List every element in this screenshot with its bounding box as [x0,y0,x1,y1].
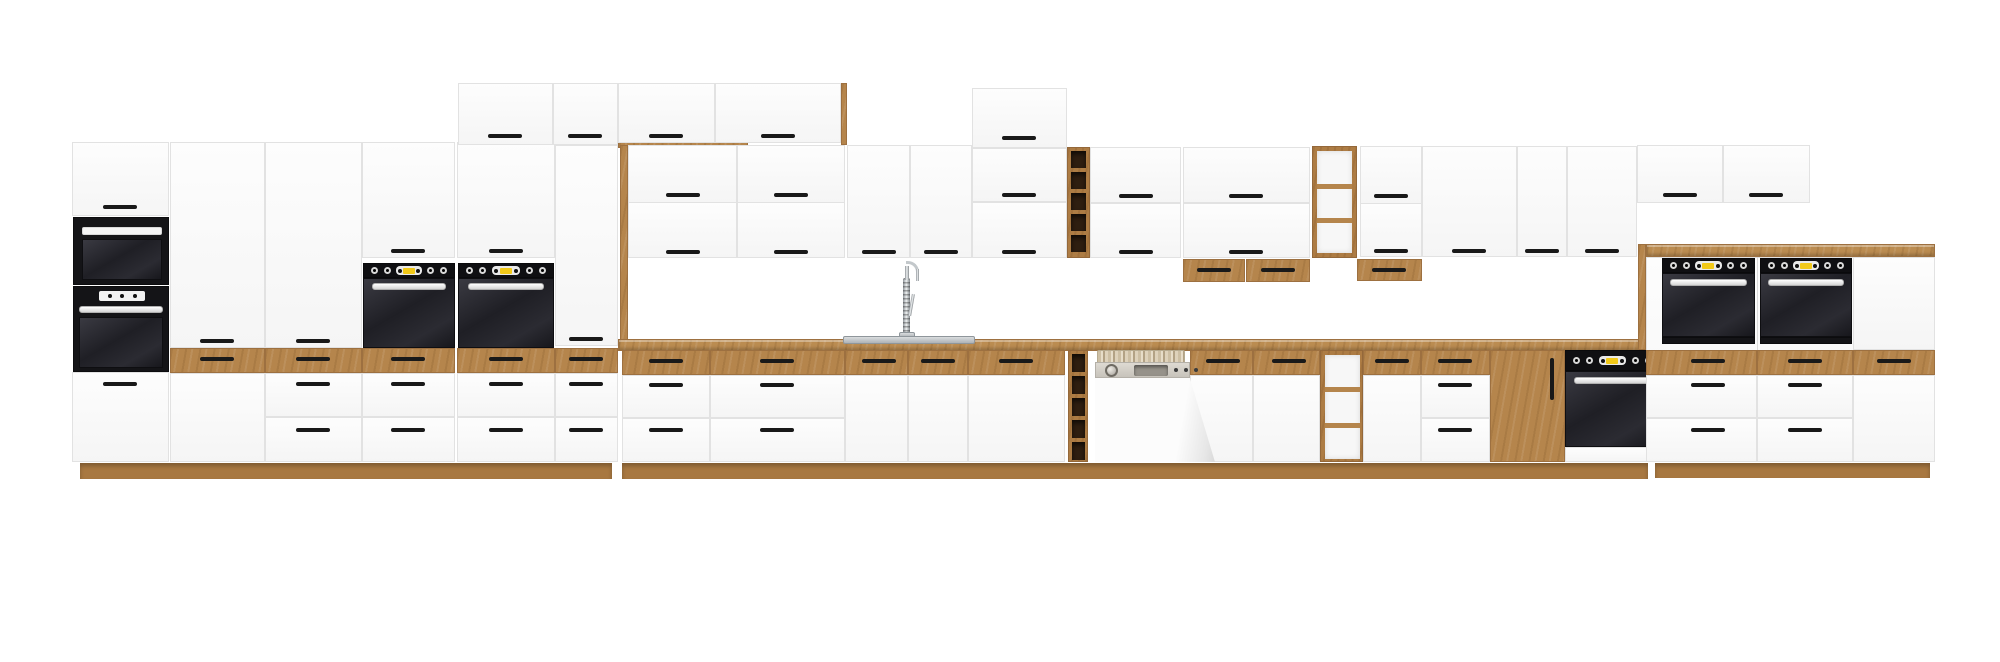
oven-display [1695,261,1721,270]
dishwasher-button [1194,368,1198,372]
oven-knob [1670,262,1677,269]
oven-knob [1683,262,1690,269]
door-handle [488,134,522,138]
oven-bottom-trim [1662,337,1755,344]
dishwasher-control-panel [1095,362,1190,378]
plinth-left [80,463,612,479]
door-handle [774,193,808,197]
base-drawer-front [1646,418,1757,462]
display-dot [1601,359,1605,363]
display-dot [416,269,420,273]
door-handle [1197,268,1231,272]
wine-rack-niche [1072,420,1085,438]
oven-knob [1586,357,1593,364]
door-handle [924,250,958,254]
microwave-glass [82,239,162,280]
wall-cabinet-door [1422,146,1517,257]
wine-rack-niche [1071,151,1086,168]
oven-control-panel [1662,258,1755,273]
oven-handle-bar [1670,279,1747,286]
display-yellow [403,268,415,274]
tall-cabinet-door [170,142,265,348]
base-drawer-front [1421,375,1490,418]
shelf-back-panel [1325,355,1360,459]
display-dot [108,294,112,298]
door-handle [921,359,955,363]
oven-control-panel [1760,258,1852,273]
oven-handle-bar [372,283,446,290]
door-handle [1691,428,1725,432]
door-handle [649,383,683,387]
oven-glass-door [79,317,163,368]
wine-rack-niche [1072,354,1085,372]
wine-rack-niche [1072,442,1085,460]
microwave-handle-bar [82,227,162,235]
door-handle [1663,193,1697,197]
base-door [968,375,1065,462]
display-dot [514,269,518,273]
display-yellow [1606,358,1618,364]
door-handle [1119,250,1153,254]
oak-shelf [1317,218,1352,223]
door-handle [761,134,795,138]
display-dot [133,294,137,298]
base-door [170,373,265,462]
oven-knob [1837,262,1844,269]
door-handle [649,359,683,363]
dishwasher-button [1184,368,1188,372]
oven-knob [479,267,486,274]
base-drawer-front [1757,375,1853,418]
base-drawer-front [555,373,618,417]
oak-side-panel [1638,244,1646,350]
oven-bottom-trim [1760,337,1852,344]
door-handle [391,382,425,386]
door-handle [1691,383,1725,387]
dishwasher-handle-recess [1134,365,1168,376]
display-dot [120,294,124,298]
door-handle [569,428,603,432]
door-handle [1374,194,1408,198]
base-drawer-front [1646,375,1757,418]
oven-glass-door [1760,273,1852,337]
door-handle [862,250,896,254]
oven-control-panel [458,263,554,278]
shelf-back-panel [1317,151,1352,253]
oven-knob [1768,262,1775,269]
door-handle [649,428,683,432]
wall-cabinet-door [910,145,972,258]
oven-knob [1740,262,1747,269]
oven-knob [1573,357,1580,364]
dishwasher-dial [1105,364,1118,377]
sink-rim [843,336,975,344]
oven-display [1793,261,1819,270]
base-drawer-front [362,417,455,462]
base-drawer-front [457,417,555,462]
oven-knob [440,267,447,274]
oven-knob [526,267,533,274]
oven-knob [1632,357,1639,364]
base-drawer-front [622,375,710,418]
oven-display [492,266,519,275]
door-handle [760,383,794,387]
wine-rack-niche [1071,214,1086,231]
display-dot [1620,359,1624,363]
door-handle [1372,268,1406,272]
oven-handle-bar [79,306,163,313]
base-drawer-front [362,373,455,417]
oak-shelf [1325,387,1360,392]
door-handle [200,339,234,343]
base-drawer-front [265,373,362,417]
wine-rack-niche [1071,235,1086,252]
oak-shelf [1317,184,1352,189]
oven-knob [1824,262,1831,269]
base-drawer-front [457,373,555,417]
oak-tower-top [1646,244,1935,257]
display-dot [494,269,498,273]
door-handle [999,359,1033,363]
display-yellow [1800,263,1812,269]
oven-handle-bar [1574,377,1651,384]
oak-side-support-panel [620,145,628,341]
door-handle [1261,268,1295,272]
door-handle [296,339,330,343]
base-drawer-front [710,375,845,418]
door-handle [1374,249,1408,253]
door-handle [296,382,330,386]
display-yellow [1702,263,1714,269]
door-handle [1206,359,1240,363]
dishwasher-cutlery-row [1097,350,1185,362]
base-drawer-front [1757,418,1853,462]
faucet-spout-tip [916,269,919,281]
base-open-shelf-unit [1320,350,1363,462]
door-handle [1691,359,1725,363]
oven-knob [427,267,434,274]
door-handle [1438,383,1472,387]
wine-rack-niche [1071,193,1086,210]
wall-wine-rack [1067,147,1090,258]
oven-control-panel [363,263,455,278]
door-handle [391,428,425,432]
door-handle [568,134,602,138]
tall-cabinet-door [265,142,362,348]
display-dot [1813,264,1817,268]
base-drawer-front [622,418,710,462]
door-handle [200,357,234,361]
base-drawer-front [265,417,362,462]
plinth-right [1655,463,1930,478]
sink-base-door [845,375,908,462]
base-door [1253,375,1320,462]
wall-open-shelf-unit [1312,146,1357,258]
door-handle [391,249,425,253]
door-handle [1375,359,1409,363]
display-dot [1697,264,1701,268]
tall-cabinet-door [362,142,455,258]
door-handle [649,134,683,138]
door-handle [569,357,603,361]
door-handle [489,382,523,386]
display-dot [1795,264,1799,268]
door-handle [569,337,603,341]
wall-cabinet-door [847,145,910,258]
door-handle [1438,428,1472,432]
door-handle [1525,249,1559,253]
oven-handle-bar [1768,279,1844,286]
oven-display [1599,356,1626,365]
oven-knob [539,267,546,274]
door-handle [1788,383,1822,387]
oven-handle-bar [468,283,544,290]
built-in-oven-left-column [73,286,169,372]
door-handle [1585,249,1619,253]
door-handle [489,357,523,361]
tall-cabinet-door [457,142,555,258]
wine-rack-niche [1071,172,1086,189]
oven-display [99,291,145,301]
door-handle [1438,359,1472,363]
door-handle [489,428,523,432]
oven-knob [371,267,378,274]
door-handle [489,249,523,253]
door-handle [103,205,137,209]
wall-cabinet-door [1567,146,1637,257]
door-handle [666,193,700,197]
door-handle [862,359,896,363]
door-handle [760,359,794,363]
oven-knob [1727,262,1734,269]
sink-base-door [908,375,968,462]
plinth-middle [622,463,1648,479]
door-handle [1002,193,1036,197]
door-handle [1788,359,1822,363]
door-handle [666,250,700,254]
door-handle [569,382,603,386]
door-handle [296,357,330,361]
tower-cabinet-door [1853,375,1935,462]
door-handle [1788,428,1822,432]
base-drawer-front [555,417,618,462]
base-door [1363,375,1421,462]
door-handle [391,357,425,361]
base-drawer-front [1421,418,1490,462]
display-yellow [500,268,512,274]
door-handle [1002,250,1036,254]
door-handle [1229,250,1263,254]
oven-display [396,266,422,275]
wine-rack-niche [1072,376,1085,394]
base-wine-rack [1068,350,1088,462]
wall-cabinet-door [1517,146,1567,257]
semi-tall-cabinet-door [555,145,618,346]
door-handle [1452,249,1486,253]
top-box-oak-end-panel [841,83,847,145]
oven-glass-door [363,278,455,348]
oven-knob [1781,262,1788,269]
oven-glass-door [1662,273,1755,337]
oak-shelf [1325,423,1360,428]
dishwasher-button [1174,368,1178,372]
door-handle [296,428,330,432]
base-drawer-front [710,418,845,462]
built-in-microwave [73,217,169,285]
door-handle [774,250,808,254]
door-handle [103,382,137,386]
display-dot [1716,264,1720,268]
door-handle [1119,194,1153,198]
door-handle [1272,359,1306,363]
oven-knob [384,267,391,274]
door-handle [1877,359,1911,363]
door-handle [1002,136,1036,140]
door-handle [1229,194,1263,198]
oven-knob [466,267,473,274]
pantry-door-handle [1550,358,1554,400]
tower-cabinet-door [1853,257,1935,350]
kitchen-render-scene [0,0,2000,662]
oven-glass-door [458,278,554,348]
display-dot [398,269,402,273]
door-handle [760,428,794,432]
door-handle [1749,193,1783,197]
wine-rack-niche [1072,398,1085,416]
